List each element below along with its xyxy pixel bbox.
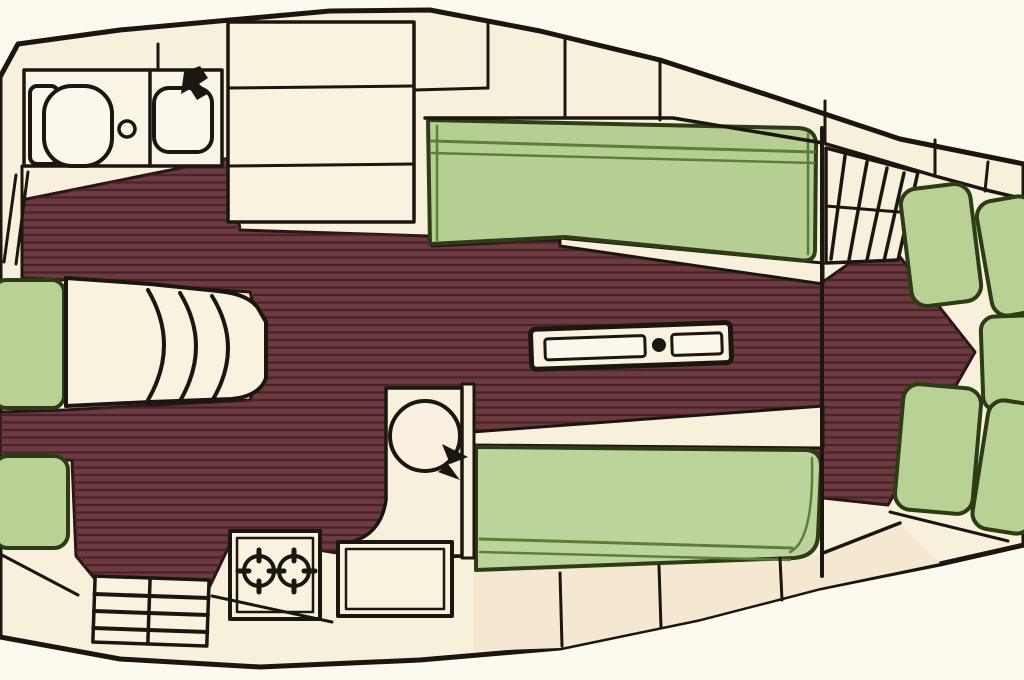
toilet-drain: [119, 121, 135, 137]
boat-floor-plan-diagram: [0, 0, 1024, 680]
galley-icebox: [338, 542, 452, 616]
forward-lockers-divider-1: [228, 86, 414, 88]
hull-locker-divider-a: [560, 573, 562, 646]
boat-floor-plan-page: [0, 0, 1024, 680]
aft-berth-cushion-4: [894, 383, 983, 515]
hull-locker-divider-b: [659, 566, 661, 628]
saloon-table-leaf-small: [672, 333, 723, 356]
toilet-bowl: [44, 86, 112, 166]
forward-lockers: [228, 22, 414, 222]
galley-bulkhead: [462, 384, 474, 558]
head-sink: [154, 88, 212, 152]
companionway-rail: [148, 578, 150, 644]
aft-berth-cushion-3: [980, 315, 1024, 411]
shelf-panel-line: [414, 88, 488, 90]
starboard-settee-berth: [476, 447, 821, 570]
saloon-table-leaf: [545, 335, 646, 359]
v-berth-cushion-lower: [0, 456, 68, 548]
forward-cabin-dresser: [66, 278, 266, 406]
v-berth-cushion-upper: [0, 280, 64, 408]
aft-berth-cushion-1: [899, 182, 983, 308]
hull-locker-divider-c: [780, 558, 782, 600]
forward-lockers-divider-2: [228, 164, 414, 166]
